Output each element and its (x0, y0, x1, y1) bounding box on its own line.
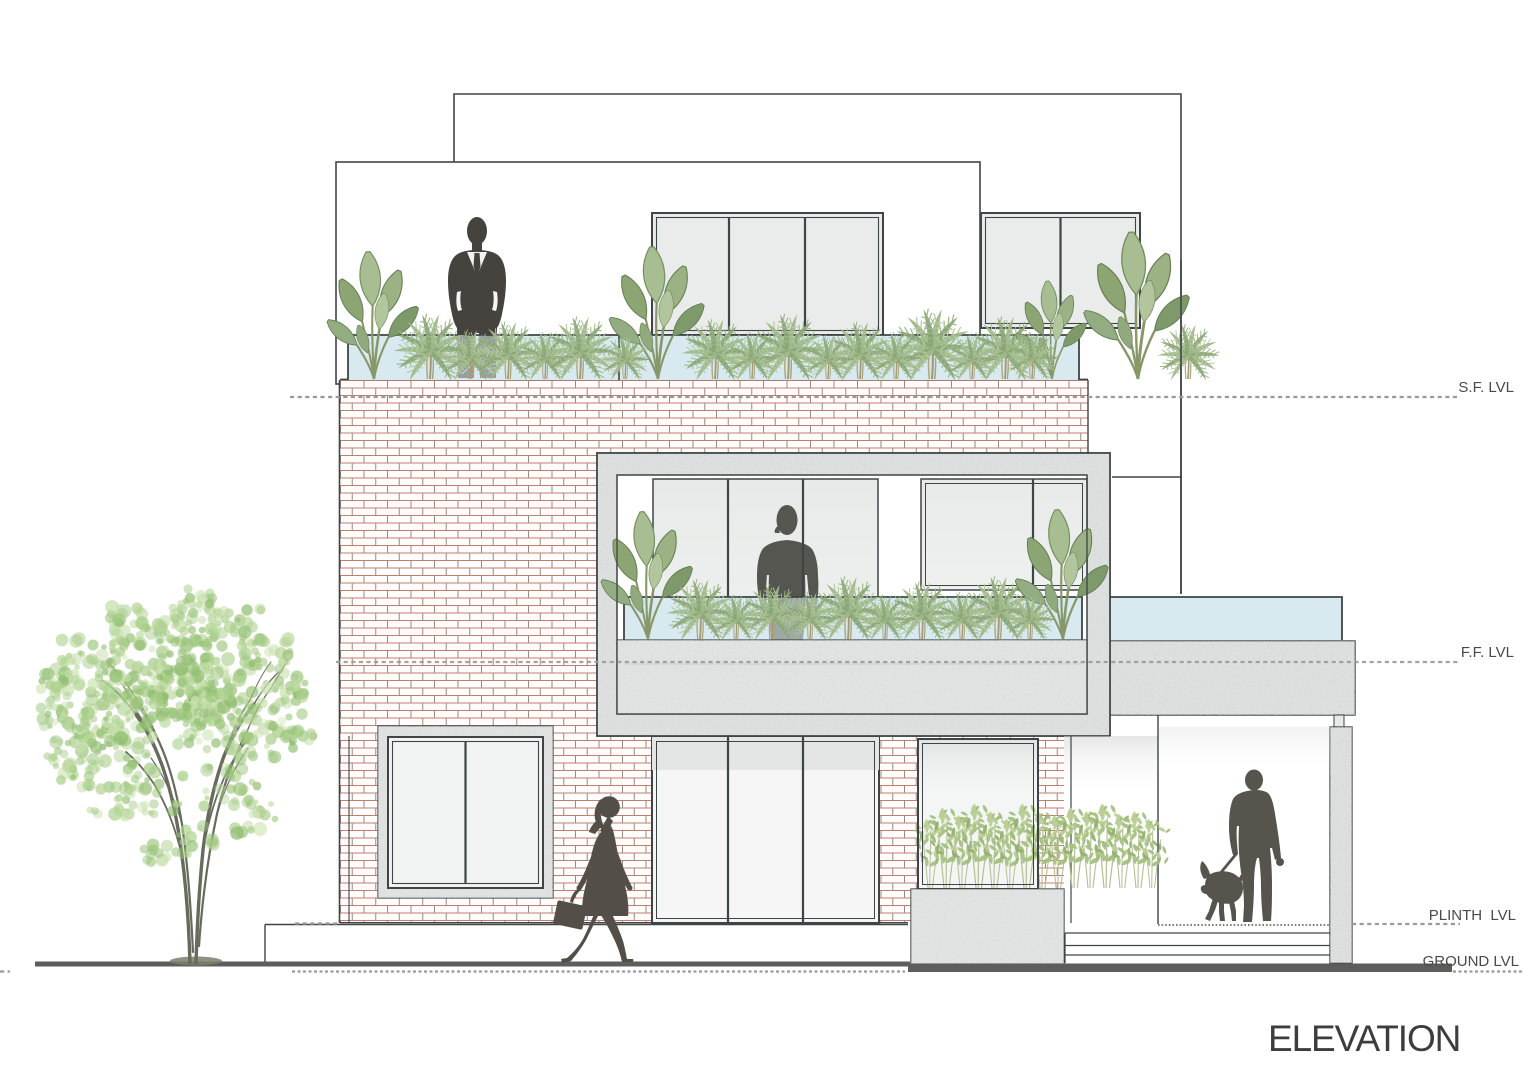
svg-text:S.F. LVL: S.F. LVL (1458, 379, 1514, 396)
svg-text:F.F. LVL: F.F. LVL (1461, 644, 1514, 661)
svg-text:GROUND LVL: GROUND LVL (1423, 953, 1519, 970)
svg-text:PLINTH LVL: PLINTH LVL (1429, 907, 1516, 924)
svg-text:ELEVATION: ELEVATION (1268, 1018, 1460, 1059)
